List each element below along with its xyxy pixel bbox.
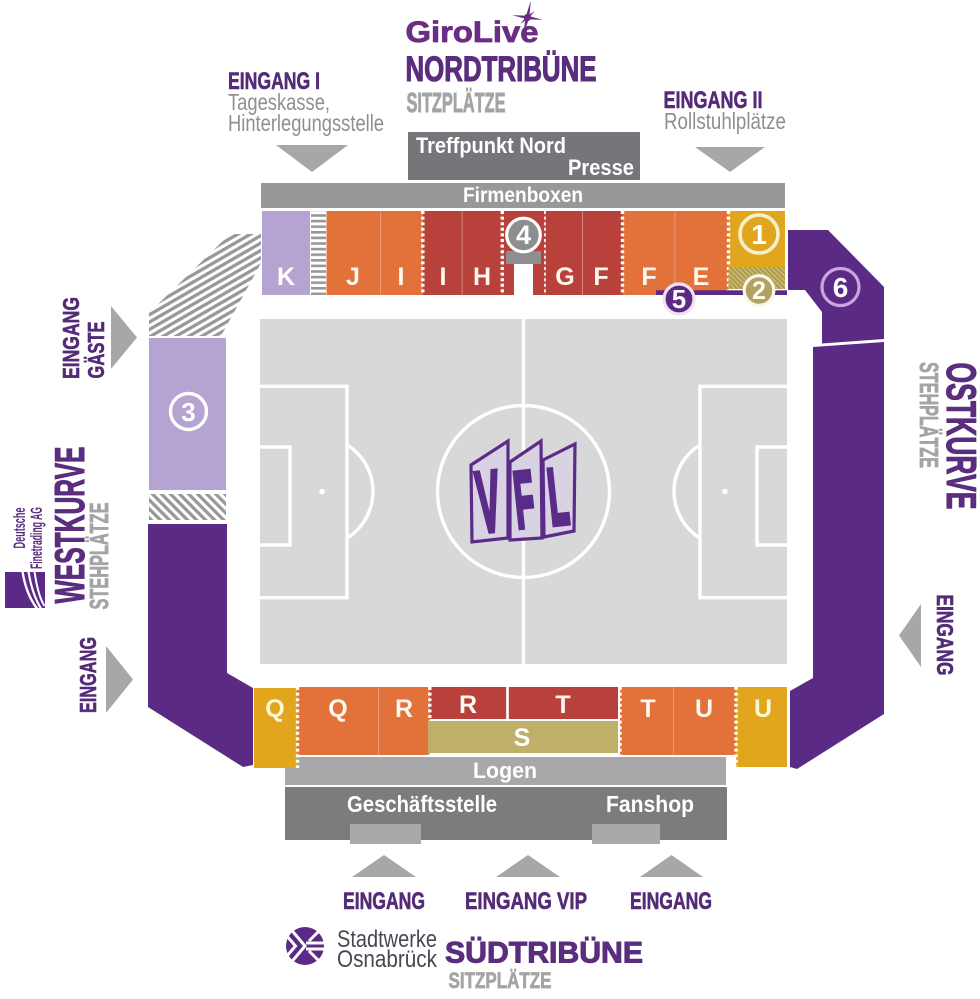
svg-text:EINGANG: EINGANG	[630, 888, 712, 915]
svg-text:Q: Q	[328, 695, 347, 723]
svg-text:6: 6	[833, 272, 849, 303]
svg-text:STEHPLÄTZE: STEHPLÄTZE	[914, 362, 944, 468]
svg-text:T: T	[640, 695, 655, 723]
svg-text:I: I	[398, 263, 405, 291]
svg-text:Fanshop: Fanshop	[606, 791, 694, 817]
svg-text:Osnabrück: Osnabrück	[337, 946, 438, 973]
svg-text:NORDTRIBÜNE: NORDTRIBÜNE	[406, 50, 597, 89]
svg-text:GÄSTE: GÄSTE	[83, 322, 109, 379]
svg-text:Presse: Presse	[568, 155, 634, 180]
svg-text:Firmenboxen: Firmenboxen	[463, 184, 583, 207]
svg-text:Treffpunkt Nord: Treffpunkt Nord	[416, 133, 566, 158]
svg-text:EINGANG: EINGANG	[343, 888, 425, 915]
svg-text:G: G	[555, 263, 574, 291]
svg-text:R: R	[459, 691, 477, 719]
svg-text:3: 3	[181, 397, 195, 427]
svg-text:H: H	[473, 263, 491, 291]
svg-text:SITZPLÄTZE: SITZPLÄTZE	[407, 87, 506, 118]
svg-text:U: U	[695, 695, 713, 723]
svg-text:Finetrading AG: Finetrading AG	[28, 507, 46, 569]
svg-text:R: R	[395, 695, 413, 723]
svg-text:T: T	[555, 691, 570, 719]
svg-text:Hinterlegungsstelle: Hinterlegungsstelle	[228, 110, 384, 136]
svg-text:Q: Q	[265, 695, 284, 723]
svg-text:I: I	[440, 263, 447, 291]
svg-text:Logen: Logen	[473, 758, 537, 783]
svg-text:4: 4	[516, 220, 531, 250]
svg-text:E: E	[693, 263, 710, 291]
svg-text:J: J	[346, 263, 360, 291]
svg-text:SÜDTRIBÜNE: SÜDTRIBÜNE	[445, 937, 643, 970]
svg-text:F: F	[593, 263, 608, 291]
svg-text:U: U	[754, 695, 772, 723]
svg-text:Rollstuhlplätze: Rollstuhlplätze	[664, 108, 786, 134]
svg-text:SITZPLÄTZE: SITZPLÄTZE	[449, 968, 552, 993]
svg-text:S: S	[514, 724, 531, 752]
svg-text:1: 1	[751, 219, 767, 250]
svg-text:5: 5	[672, 284, 686, 314]
svg-text:Deutsche: Deutsche	[11, 508, 29, 549]
svg-text:2: 2	[752, 277, 766, 305]
svg-text:GiroLive: GiroLive	[406, 16, 539, 49]
svg-text:F: F	[641, 263, 656, 291]
svg-text:Geschäftsstelle: Geschäftsstelle	[347, 791, 497, 817]
svg-text:STEHPLÄTZE: STEHPLÄTZE	[84, 503, 114, 610]
svg-text:EINGANG: EINGANG	[75, 637, 101, 713]
svg-text:EINGANG: EINGANG	[58, 297, 84, 379]
svg-text:EINGANG: EINGANG	[932, 595, 958, 676]
svg-text:EINGANG VIP: EINGANG VIP	[465, 888, 587, 915]
svg-text:K: K	[277, 263, 295, 291]
